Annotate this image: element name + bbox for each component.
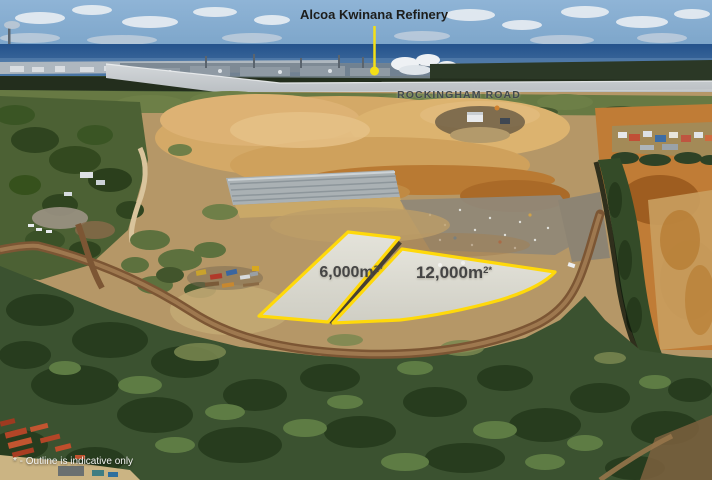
road-name-label: ROCKINGHAM ROAD — [397, 89, 521, 101]
parcel-12000-area-label: 12,000m2* — [416, 263, 492, 283]
machinery-cluster — [187, 266, 263, 290]
refinery-callout-text: Alcoa Kwinana Refinery — [300, 7, 448, 22]
aerial-scene — [0, 0, 712, 480]
parcel-6000-area-value: 6,000m — [319, 264, 373, 281]
outline-disclaimer: * - Outline is indicative only — [13, 456, 133, 467]
parcel-6000-area-label: 6,000m2* — [319, 264, 382, 282]
refinery-callout-label: Alcoa Kwinana Refinery — [304, 2, 444, 26]
aerial-photo: Alcoa Kwinana Refinery ROCKINGHAM ROAD 6… — [0, 0, 712, 480]
parcel-12000-area-sup: 2* — [483, 265, 492, 276]
parcel-6000-area-sup: 2* — [374, 264, 383, 275]
refinery-marker-dot — [370, 67, 379, 76]
parcel-12000-area-value: 12,000m — [416, 263, 483, 282]
